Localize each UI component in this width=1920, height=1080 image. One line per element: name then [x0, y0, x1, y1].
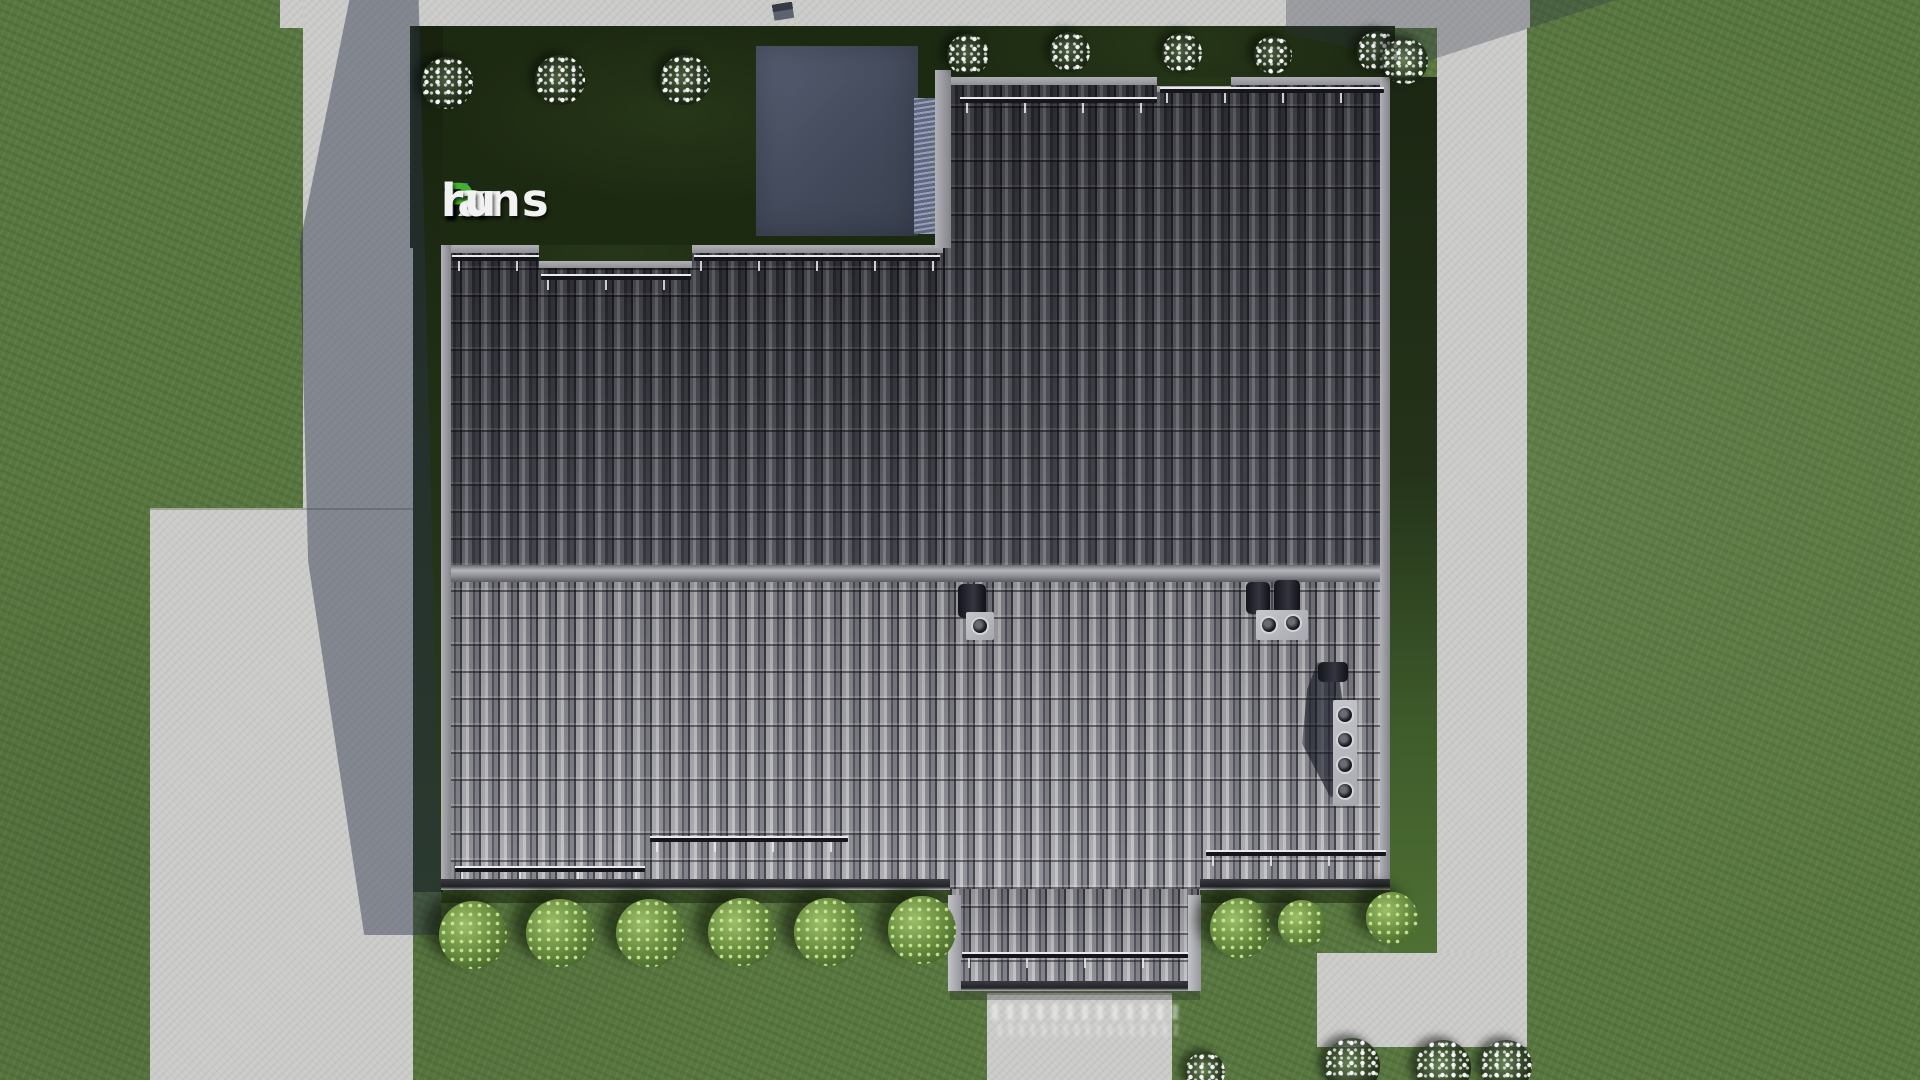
roof-south-slope: [441, 582, 1390, 889]
green-bush: [616, 899, 684, 967]
path-right-strip: [1437, 0, 1527, 958]
snow-guard-rail: [1206, 852, 1386, 856]
eave-fascia-left: [441, 879, 950, 890]
roof-north-slope-right-wing: [943, 77, 1390, 567]
roof-eave-trim-left-wing: [441, 245, 943, 253]
green-bush: [439, 901, 507, 969]
green-bush: [526, 899, 594, 967]
snow-guard-rail: [694, 257, 940, 261]
roof-gable-trim-east: [1380, 77, 1390, 889]
logo-part-ru: ru: [441, 178, 497, 223]
green-bush: [1210, 898, 1270, 958]
snow-guard-rail: [1160, 89, 1384, 93]
eave-notch-left-trim: [539, 261, 692, 268]
top-watermark-cutoff: [772, 0, 1032, 35]
green-bush: [1278, 900, 1326, 948]
green-bush: [1366, 892, 1418, 944]
flower-bush: [1254, 36, 1292, 74]
porch-ground-shadow: [950, 991, 1200, 1000]
roof-valley-seam: [941, 248, 945, 566]
snow-guard-rail: [541, 276, 691, 280]
vent-outlet: [1262, 618, 1276, 632]
flower-bush: [421, 57, 473, 109]
roof-vent-strip: [1333, 700, 1357, 806]
snow-guard-rail: [452, 257, 539, 261]
roof-junction-trim: [935, 70, 951, 248]
vent-outlet: [1338, 733, 1352, 747]
flower-bush: [1050, 32, 1090, 72]
vent-outlet: [1338, 708, 1352, 722]
porch-post: [1188, 895, 1201, 991]
vent-outlet: [1338, 758, 1352, 772]
render-canvas: FixPlans.ru: [0, 0, 1920, 1080]
snow-guard-rail: [960, 99, 1157, 103]
porch-snow-guard-rail: [962, 954, 1188, 958]
green-bush: [888, 896, 956, 964]
roof-vent-base: [966, 612, 994, 640]
path-bottom-right-band: [1317, 953, 1527, 1047]
porch-fascia: [950, 981, 1200, 991]
eave-ground-shadow: [441, 890, 950, 903]
roof-vent-pipe: [1318, 662, 1348, 682]
roof-vent-base-double: [1256, 610, 1308, 640]
roof-vent-pipe: [1274, 580, 1300, 614]
flower-bush: [535, 55, 585, 105]
eave-fascia-right: [1200, 879, 1390, 890]
flower-bush: [1382, 38, 1428, 84]
green-bush: [708, 898, 776, 966]
porch-roof: [950, 889, 1200, 989]
flower-bush: [1162, 33, 1202, 73]
vent-outlet: [1338, 784, 1352, 798]
vent-outlet: [973, 619, 987, 633]
vent-outlet: [1286, 616, 1300, 630]
snow-guard-rail: [455, 868, 645, 872]
snow-guard-rail: [650, 838, 848, 842]
green-bush: [794, 898, 862, 966]
roof-gable-trim-west: [441, 245, 451, 889]
east-shadow-lawn-strip: [1390, 77, 1437, 953]
flower-bush: [947, 34, 989, 76]
wm-block-shadow: [772, 2, 794, 21]
terrace-faint-marks: [992, 1002, 1182, 1044]
roof-north-slope-left-wing: [441, 245, 943, 567]
roof-ridge: [441, 565, 1390, 583]
flower-bush: [660, 55, 710, 105]
entry-wall-shadow: [756, 46, 918, 236]
